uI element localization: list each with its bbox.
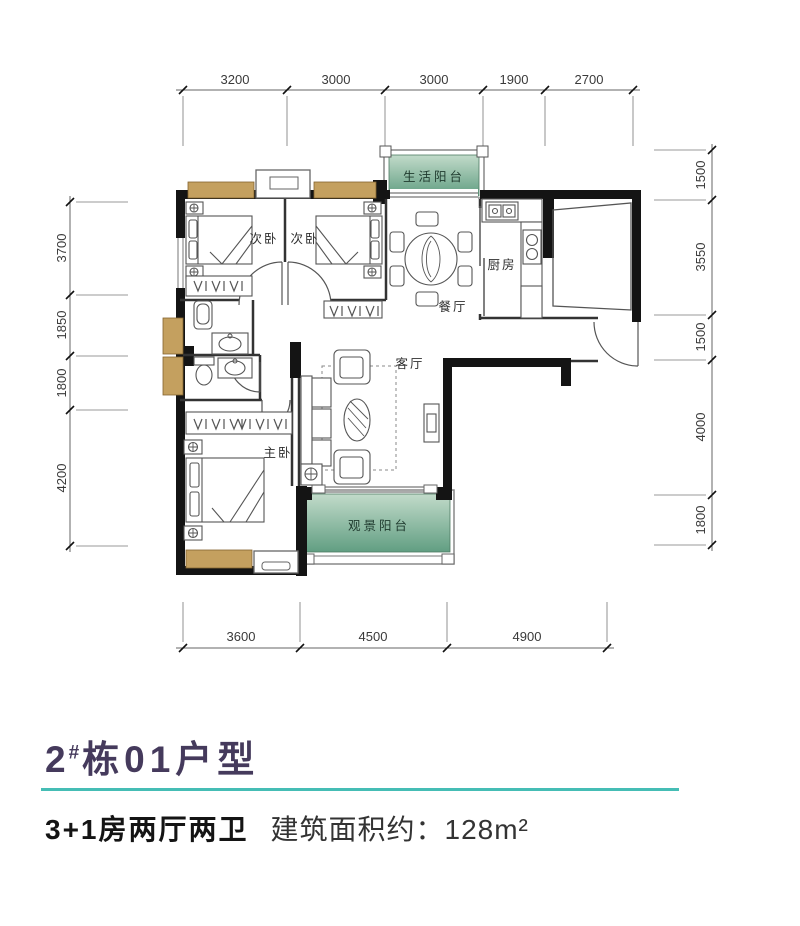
door-bedroom-b xyxy=(288,262,331,305)
dim-top-3: 3000 xyxy=(420,72,449,87)
room-label-master: 主卧 xyxy=(263,446,292,460)
bay-window-tan-left-lower xyxy=(163,357,183,395)
window-left-wall xyxy=(175,238,186,288)
bay-window-tan-top-left xyxy=(188,182,254,198)
bed-master xyxy=(186,458,264,522)
floorplan-canvas: 3200 3000 3000 1900 2700 3700 1850 1800 … xyxy=(0,0,800,700)
room-label-dining: 餐厅 xyxy=(438,299,467,314)
bay-window-tan-left-upper xyxy=(163,318,183,354)
dim-left-1: 3700 xyxy=(54,234,69,263)
dim-left-4: 4200 xyxy=(54,464,69,493)
dim-top-2: 3000 xyxy=(322,72,351,87)
stairwell-outline xyxy=(553,203,631,310)
dim-right-2: 3550 xyxy=(693,243,708,272)
area-text: 建筑面积约：128m² xyxy=(271,814,529,845)
floorplan-page: 3200 3000 3000 1900 2700 3700 1850 1800 … xyxy=(0,0,800,926)
room-label-life-balcony: 生活阳台 xyxy=(403,169,465,184)
toilet xyxy=(194,357,214,385)
unit-suffix: 栋01户型 xyxy=(82,739,259,780)
unit-hash: # xyxy=(69,743,83,764)
washbasin-2 xyxy=(218,358,252,378)
room-label-view-balcony: 观景阳台 xyxy=(348,518,410,533)
kitchen-cabinet xyxy=(521,286,542,318)
washbasin-1 xyxy=(212,333,248,354)
title-block: 2#栋01户型 3+1房两厅两卫建筑面积约：128m² xyxy=(45,740,765,848)
dim-left-3: 1800 xyxy=(54,369,69,398)
dim-bottom-1: 3600 xyxy=(227,629,256,644)
dim-right-5: 1800 xyxy=(693,506,708,535)
bathtub xyxy=(194,301,212,329)
dim-top-1: 3200 xyxy=(221,72,250,87)
unit-number: 2 xyxy=(45,739,69,780)
bay-window-tan-top-right xyxy=(314,182,376,198)
dim-top-4: 1900 xyxy=(500,72,529,87)
slider-living-balcony xyxy=(312,485,437,493)
sofa-back xyxy=(301,376,312,464)
layout-text: 3+1房两厅两卫 xyxy=(45,814,249,845)
dim-right-3: 1500 xyxy=(693,323,708,352)
bed-bedroom-a xyxy=(186,216,252,264)
wardrobe-master xyxy=(186,412,292,434)
room-labels: 次卧 次卧 生活阳台 厨房 餐厅 客厅 主卧 观景阳台 xyxy=(249,169,516,533)
dim-top-5: 2700 xyxy=(575,72,604,87)
wardrobe-bedroom-a xyxy=(186,276,252,296)
side-table xyxy=(301,464,322,485)
wardrobe-bedroom-b xyxy=(324,301,382,318)
dining-set xyxy=(390,212,472,306)
dimension-labels: 3200 3000 3000 1900 2700 3700 1850 1800 … xyxy=(54,72,708,644)
dim-left-2: 1850 xyxy=(54,311,69,340)
accent-rule xyxy=(41,788,679,791)
room-label-bedroom-a: 次卧 xyxy=(249,232,278,246)
coffee-table xyxy=(344,399,370,441)
slider-dining-balcony xyxy=(390,189,478,200)
dim-right-4: 4000 xyxy=(693,413,708,442)
room-label-bedroom-b: 次卧 xyxy=(290,232,319,246)
door-entry xyxy=(594,322,638,366)
dim-bottom-3: 4900 xyxy=(513,629,542,644)
dim-bottom-2: 4500 xyxy=(359,629,388,644)
room-label-living: 客厅 xyxy=(395,356,424,371)
bed-bedroom-b xyxy=(316,216,382,264)
unit-subtitle: 3+1房两厅两卫建筑面积约：128m² xyxy=(45,808,765,848)
unit-title: 2#栋01户型 xyxy=(45,740,765,781)
dim-right-1: 1500 xyxy=(693,161,708,190)
bay-window-tan-bottom xyxy=(186,550,252,568)
stove xyxy=(523,230,541,264)
room-label-kitchen: 厨房 xyxy=(487,257,516,272)
